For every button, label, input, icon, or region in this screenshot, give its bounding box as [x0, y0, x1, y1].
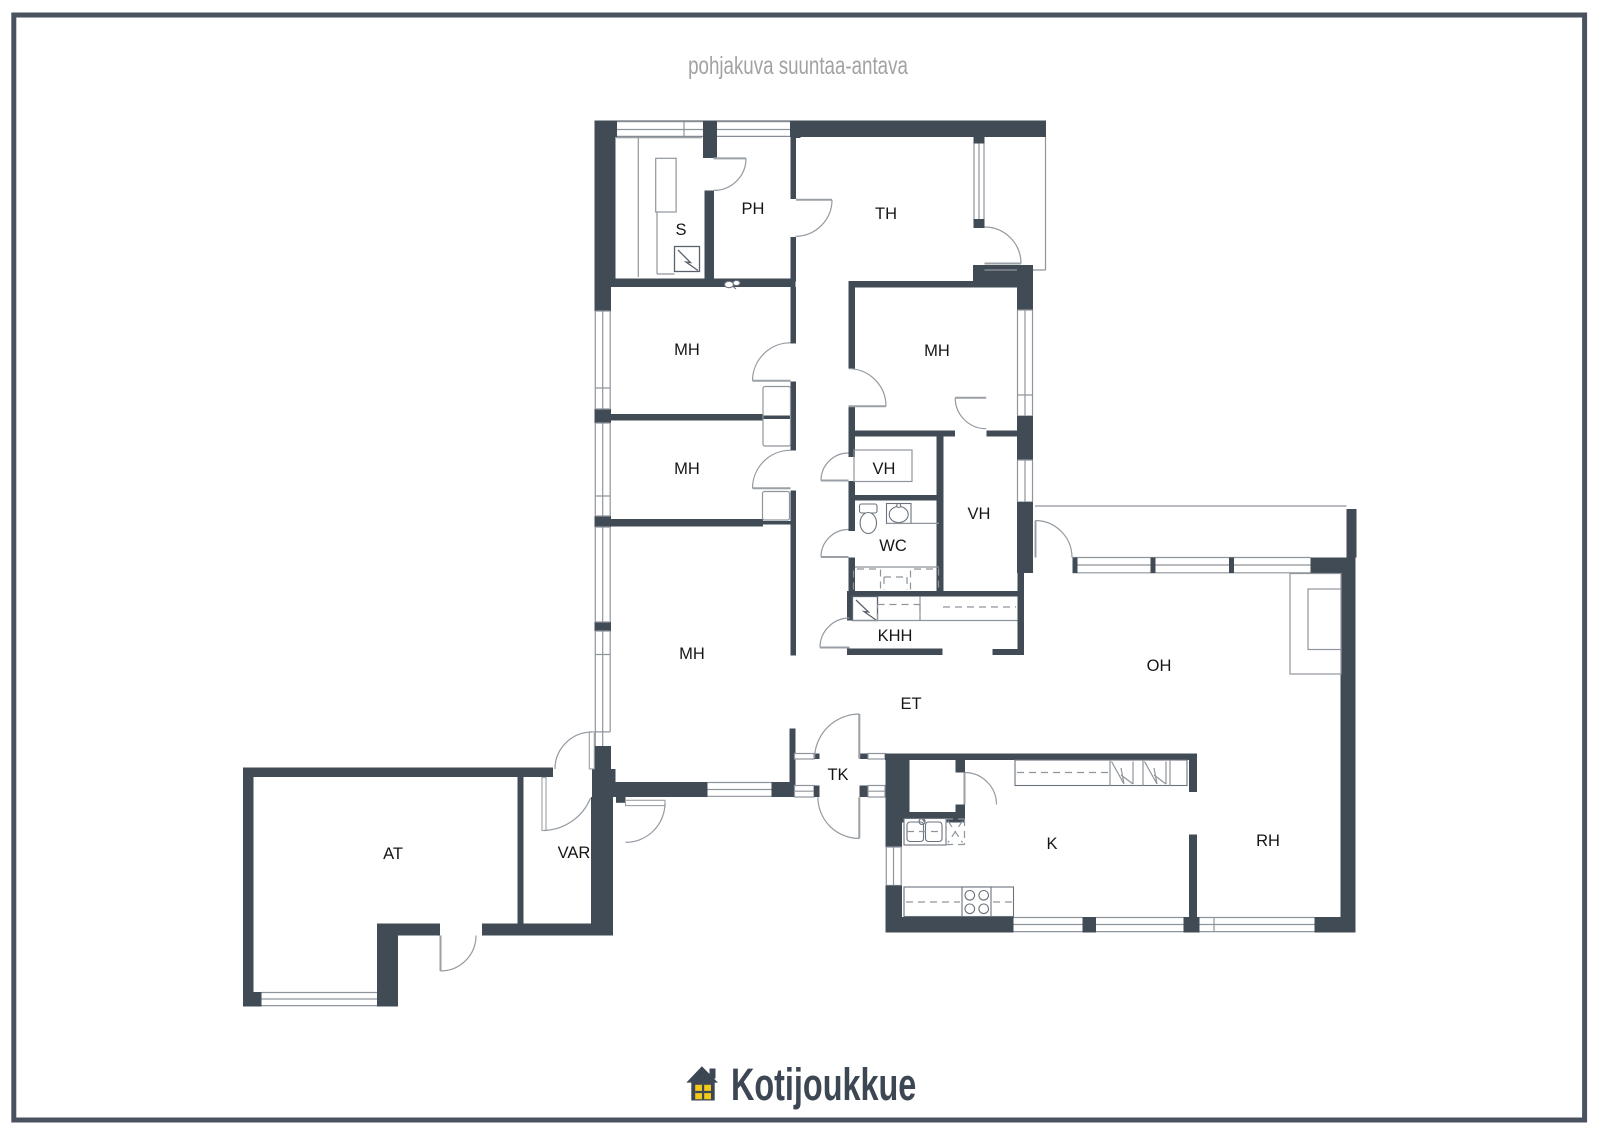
svg-text:MH: MH: [679, 645, 705, 663]
svg-text:ET: ET: [900, 695, 921, 713]
svg-text:TH: TH: [875, 205, 897, 223]
svg-text:MH: MH: [924, 342, 950, 360]
svg-text:VH: VH: [873, 460, 896, 478]
svg-text:TK: TK: [827, 766, 848, 784]
svg-text:AT: AT: [383, 845, 403, 863]
svg-text:WC: WC: [879, 537, 907, 555]
svg-text:pohjakuva suuntaa-antava: pohjakuva suuntaa-antava: [688, 51, 908, 79]
svg-text:VH: VH: [968, 505, 991, 523]
svg-text:MH: MH: [674, 341, 700, 359]
svg-text:PH: PH: [742, 200, 765, 218]
svg-text:MH: MH: [674, 460, 700, 478]
svg-text:RH: RH: [1256, 832, 1280, 850]
svg-text:S: S: [675, 221, 686, 239]
svg-text:OH: OH: [1147, 657, 1172, 675]
svg-text:KHH: KHH: [878, 627, 913, 645]
svg-text:VAR: VAR: [558, 844, 591, 862]
svg-text:Kotijoukkue: Kotijoukkue: [731, 1061, 916, 1110]
svg-text:K: K: [1046, 835, 1057, 853]
